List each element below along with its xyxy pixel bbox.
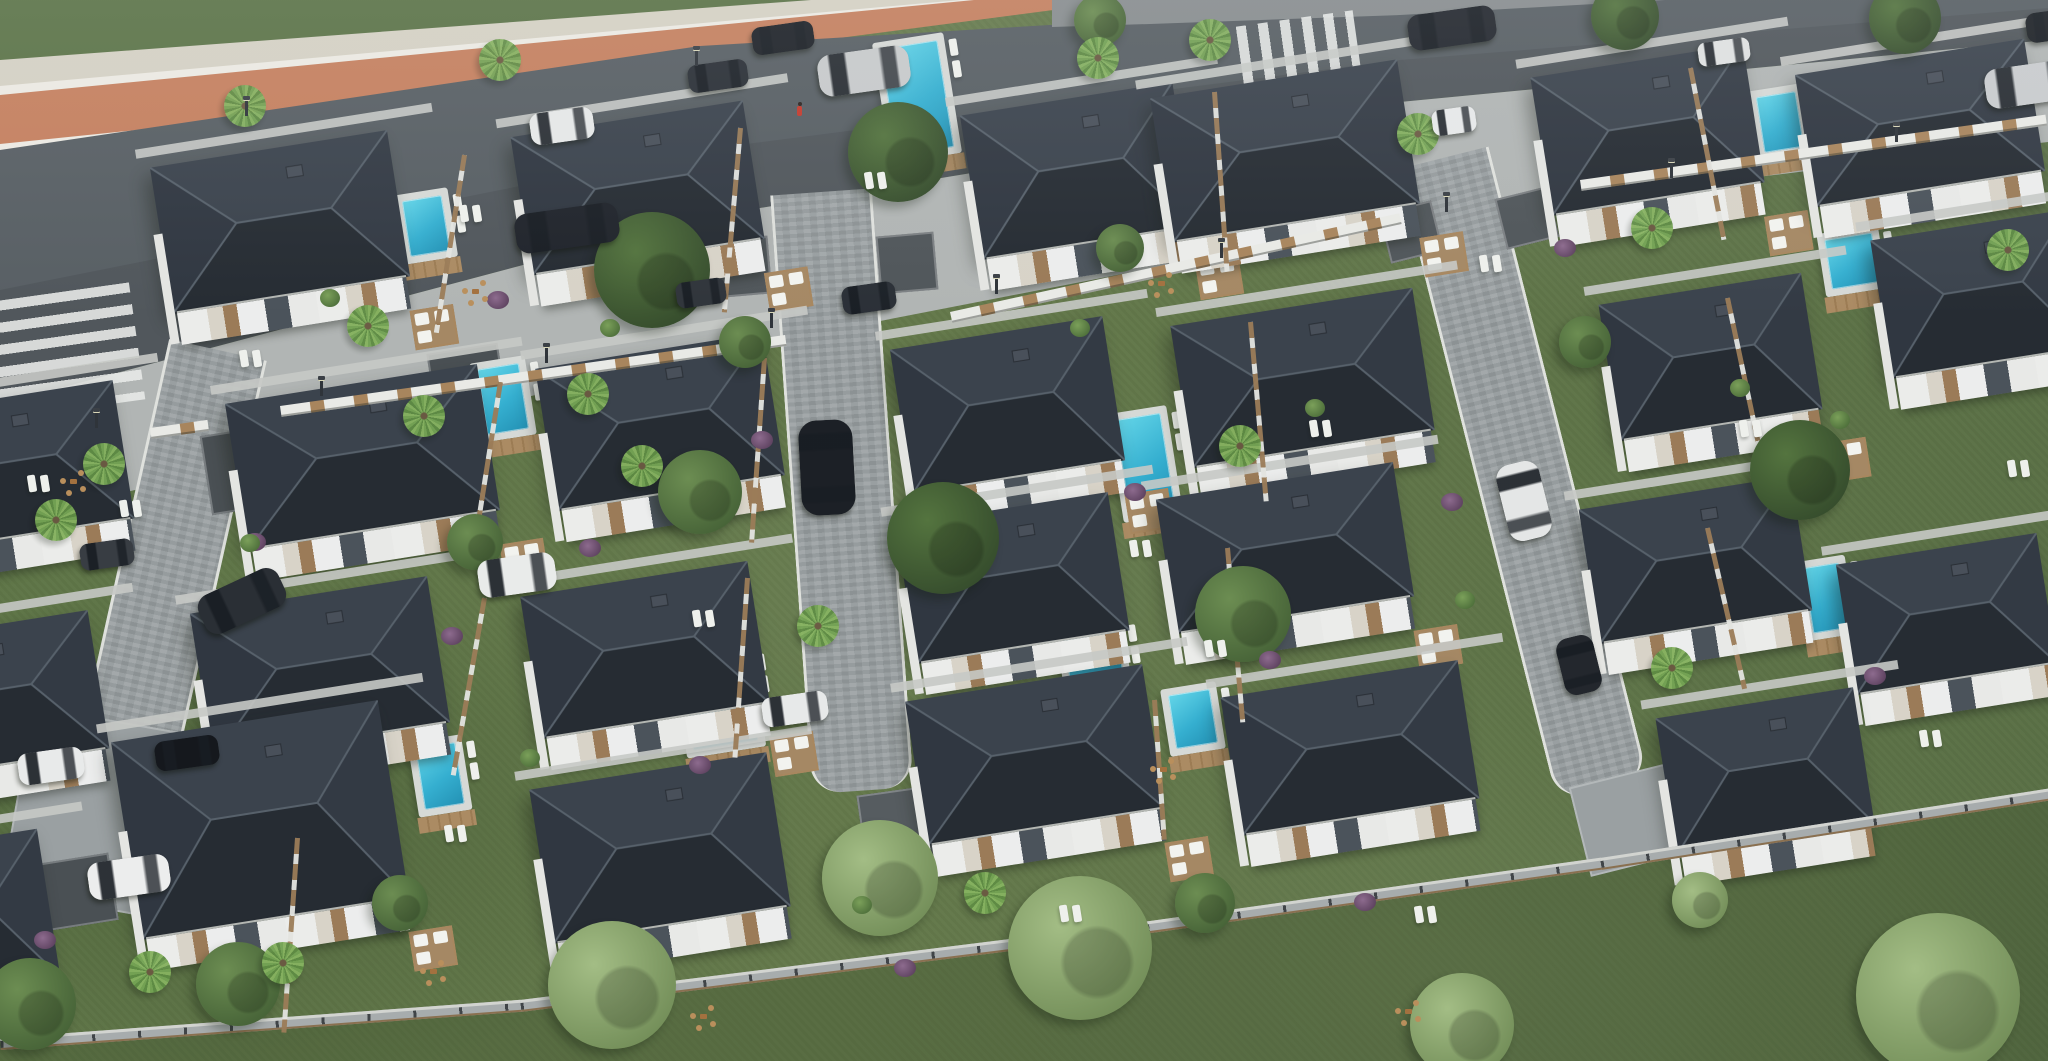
purple-shrub <box>487 291 509 309</box>
villa <box>111 700 409 940</box>
garden-chair <box>1168 758 1174 764</box>
purple-shrub <box>751 431 773 449</box>
street-lamp-post <box>695 50 698 66</box>
sun-lounger <box>1129 539 1140 557</box>
tree <box>848 102 948 202</box>
garden-chair <box>78 470 84 476</box>
garden-table <box>1158 281 1165 286</box>
sun-lounger <box>2007 459 2018 477</box>
pool-lounger <box>466 740 477 758</box>
garden-chair <box>1154 292 1160 298</box>
garden-chair <box>1415 1016 1421 1022</box>
street-lamp-head <box>1668 158 1675 163</box>
villa <box>529 752 790 944</box>
pedestrian <box>797 106 802 116</box>
bush <box>1730 379 1750 397</box>
palm-tree <box>964 872 1006 914</box>
garden-chair <box>1170 774 1176 780</box>
bush <box>1830 411 1850 429</box>
purple-shrub <box>34 931 56 949</box>
palm-tree <box>347 305 389 347</box>
purple-shrub <box>689 756 711 774</box>
tree <box>1559 316 1611 368</box>
street-lamp-head <box>543 343 550 348</box>
palm-tree <box>129 951 171 993</box>
garden-chair <box>80 486 86 492</box>
sun-lounger <box>2020 459 2031 477</box>
garden-chair <box>710 1021 716 1027</box>
garden-chair <box>1166 272 1172 278</box>
tree <box>1008 876 1152 1020</box>
street-lamp-post <box>95 412 98 428</box>
street-lamp-head <box>693 46 700 51</box>
bush <box>240 534 260 552</box>
street-lamp-head <box>93 408 100 413</box>
street-lamp-head <box>768 308 775 313</box>
street-lamp-post <box>1220 242 1223 258</box>
patio-sofa-set <box>408 925 458 971</box>
garden-chair <box>468 300 474 306</box>
garden-table <box>700 1014 707 1019</box>
garden-chair <box>66 490 72 496</box>
tree <box>822 820 938 936</box>
palm-tree <box>621 445 663 487</box>
garden-table <box>70 479 77 484</box>
tree <box>658 450 742 534</box>
villa <box>890 316 1125 494</box>
pedestrian-head <box>798 102 802 106</box>
street-lamp-post <box>320 380 323 396</box>
car <box>798 419 857 517</box>
bush <box>852 896 872 914</box>
sun-lounger <box>457 824 468 842</box>
tree <box>548 921 676 1049</box>
purple-shrub <box>1259 651 1281 669</box>
tree <box>719 316 771 368</box>
aerial-villa-complex-render <box>0 0 2048 1061</box>
garden-chair <box>696 1025 702 1031</box>
purple-shrub <box>1864 667 1886 685</box>
street-lamp-post <box>1445 196 1448 212</box>
street-lamp-post <box>770 312 773 328</box>
bush <box>520 749 540 767</box>
street-lamp-head <box>318 376 325 381</box>
bush <box>1070 319 1090 337</box>
tree <box>1175 873 1235 933</box>
garden-table <box>472 289 479 294</box>
villa <box>1598 273 1822 441</box>
garden-chair <box>60 478 66 484</box>
villa <box>520 561 770 739</box>
garden-chair <box>482 296 488 302</box>
garden-chair <box>438 960 444 966</box>
garden-chair <box>1148 280 1154 286</box>
palm-tree <box>403 395 445 437</box>
garden-chair <box>1395 1008 1401 1014</box>
pool-deck <box>1169 748 1231 773</box>
street-lamp-post <box>995 278 998 294</box>
palm-tree <box>35 499 77 541</box>
bush <box>1455 591 1475 609</box>
tree <box>1672 872 1728 928</box>
garden-chair <box>1168 288 1174 294</box>
palm-tree <box>83 443 125 485</box>
pool <box>1160 681 1226 757</box>
villa <box>1221 660 1480 836</box>
garden-table <box>1160 767 1167 772</box>
garden-chair <box>1413 1000 1419 1006</box>
pool-water <box>1168 689 1218 749</box>
street-lamp-head <box>1218 238 1225 243</box>
garden-chair <box>440 976 446 982</box>
palm-tree <box>262 942 304 984</box>
palm-tree <box>479 39 521 81</box>
garden-table <box>430 969 437 974</box>
garden-chair <box>1156 778 1162 784</box>
street-lamp-post <box>1895 126 1898 142</box>
purple-shrub <box>579 539 601 557</box>
street-lamp-post <box>1670 162 1673 178</box>
sun-lounger <box>1932 729 1943 747</box>
palm-tree <box>797 605 839 647</box>
sun-lounger <box>1919 729 1930 747</box>
purple-shrub <box>1124 483 1146 501</box>
pool-lounger <box>469 762 480 780</box>
garden-table <box>1405 1009 1412 1014</box>
street-lamp-post <box>545 347 548 363</box>
purple-shrub <box>1441 493 1463 511</box>
purple-shrub <box>1554 239 1576 257</box>
patio-sofa-set <box>1764 210 1814 256</box>
purple-shrub <box>1354 893 1376 911</box>
palm-tree <box>1651 647 1693 689</box>
garden-chair <box>426 980 432 986</box>
purple-shrub <box>441 627 463 645</box>
garden-chair <box>480 280 486 286</box>
street-lamp-head <box>993 274 1000 279</box>
street-lamp-post <box>245 100 248 116</box>
tree <box>887 482 999 594</box>
garden-chair <box>420 968 426 974</box>
pool-water <box>402 195 450 257</box>
purple-shrub <box>894 959 916 977</box>
palm-tree <box>1077 37 1119 79</box>
garden-chair <box>1401 1020 1407 1026</box>
street-lamp-head <box>1443 192 1450 197</box>
palm-tree <box>1987 229 2029 271</box>
pool-water <box>1756 91 1804 153</box>
palm-tree <box>1631 207 1673 249</box>
tree <box>372 875 428 931</box>
street-lamp-head <box>243 96 250 101</box>
garden-chair <box>708 1005 714 1011</box>
sun-lounger <box>1142 539 1153 557</box>
bush <box>320 289 340 307</box>
palm-tree <box>1219 425 1261 467</box>
garden-chair <box>462 288 468 294</box>
bush <box>600 319 620 337</box>
garden-chair <box>690 1013 696 1019</box>
palm-tree <box>1189 19 1231 61</box>
palm-tree <box>567 373 609 415</box>
tree <box>1750 420 1850 520</box>
tree <box>1096 224 1144 272</box>
street-lamp-head <box>1893 122 1900 127</box>
garden-chair <box>1150 766 1156 772</box>
bush <box>1305 399 1325 417</box>
